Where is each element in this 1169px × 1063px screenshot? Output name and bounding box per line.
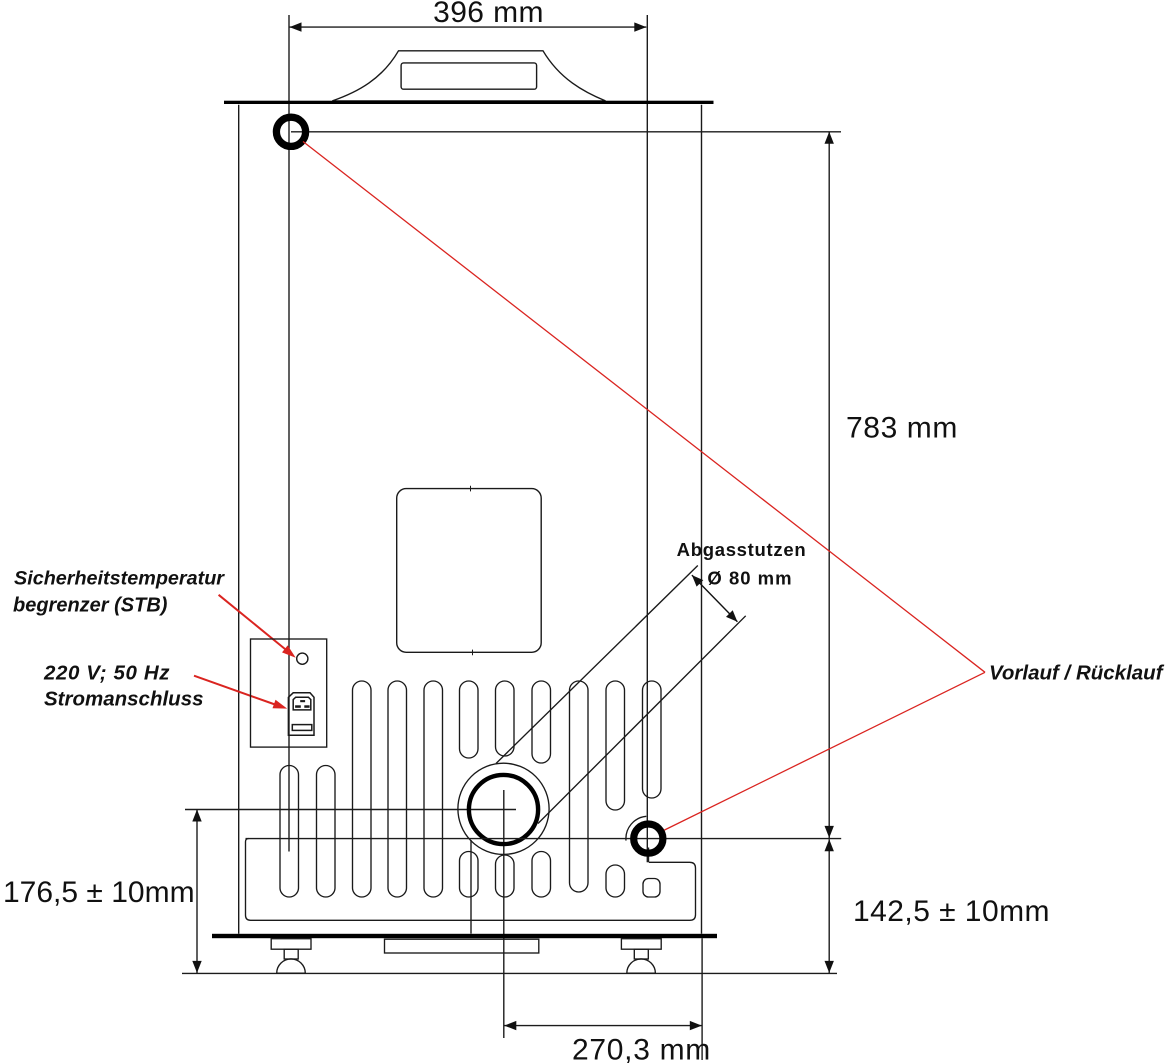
- svg-text:270,3 mm: 270,3 mm: [572, 1034, 711, 1063]
- svg-text:220 V; 50 Hz: 220 V; 50 Hz: [43, 662, 170, 685]
- svg-text:Abgasstutzen: Abgasstutzen: [677, 539, 807, 560]
- svg-text:Stromanschluss: Stromanschluss: [44, 688, 204, 711]
- svg-text:142,5 ± 10mm: 142,5 ± 10mm: [853, 895, 1050, 928]
- svg-text:Vorlauf / Rücklauf: Vorlauf / Rücklauf: [989, 662, 1165, 685]
- svg-text:begrenzer (STB): begrenzer (STB): [13, 595, 168, 617]
- svg-text:176,5 ± 10mm: 176,5 ± 10mm: [3, 876, 195, 909]
- svg-text:Ø 80 mm: Ø 80 mm: [707, 568, 792, 589]
- svg-text:396 mm: 396 mm: [433, 0, 544, 29]
- svg-text:783 mm: 783 mm: [846, 412, 958, 445]
- svg-text:Sicherheitstemperatur: Sicherheitstemperatur: [14, 568, 225, 590]
